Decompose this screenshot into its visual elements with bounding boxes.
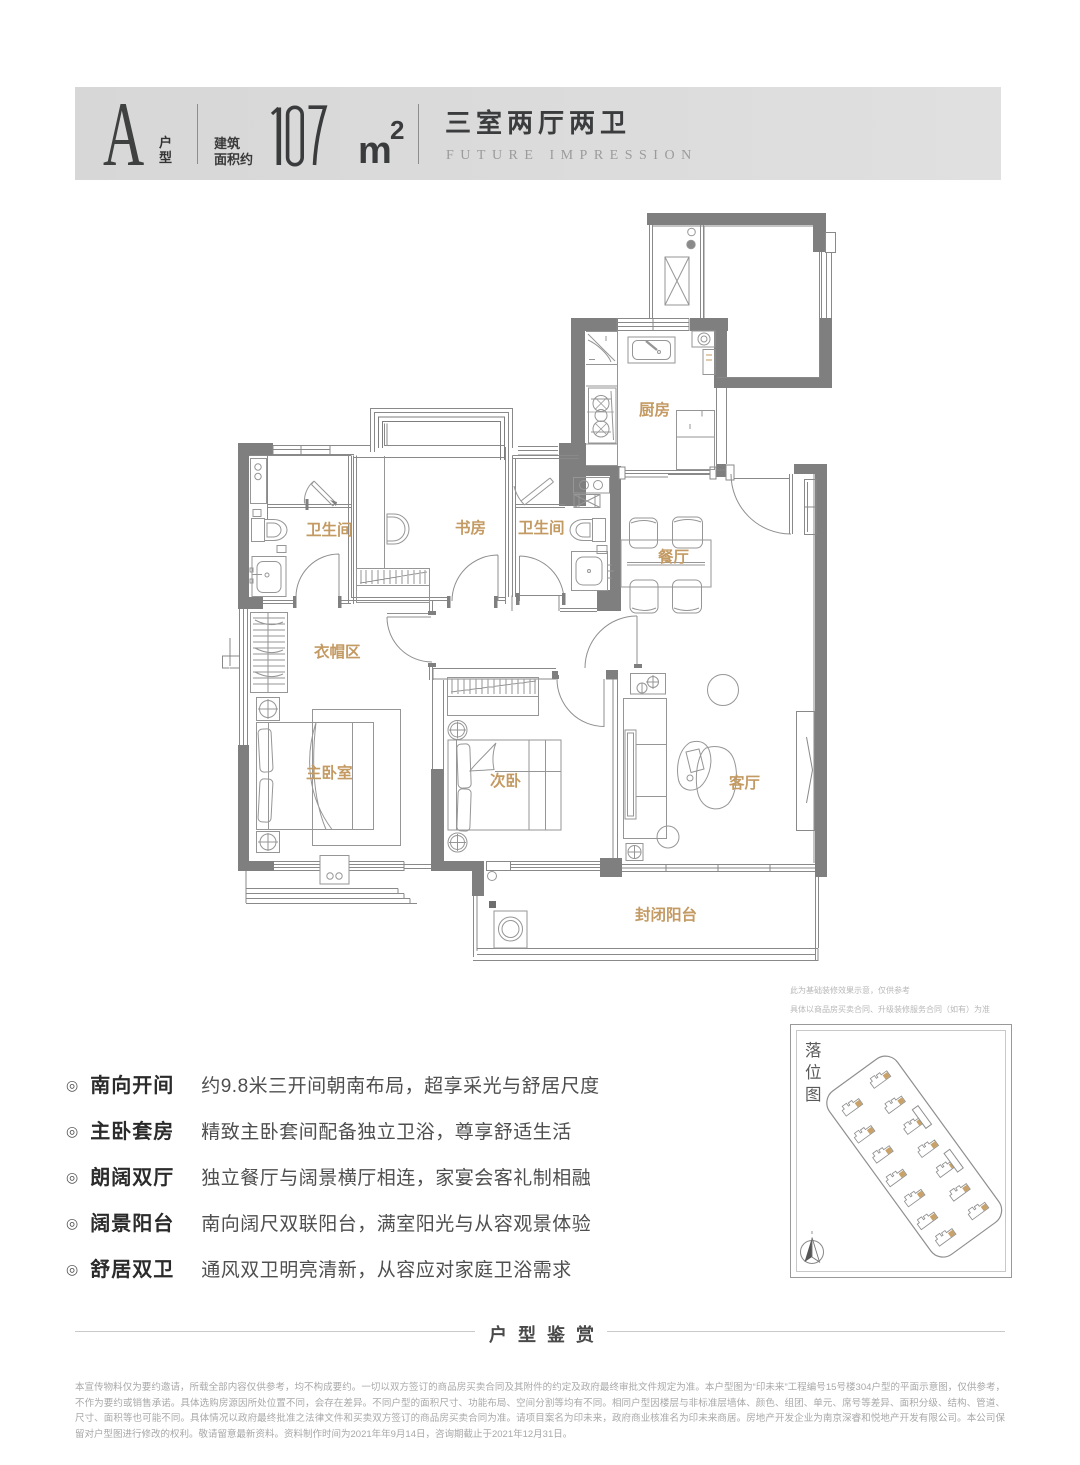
svg-text:卫生间: 卫生间 bbox=[518, 518, 565, 537]
svg-text:主卧室: 主卧室 bbox=[306, 763, 353, 782]
svg-text:次卧: 次卧 bbox=[490, 771, 522, 790]
svg-text:图: 图 bbox=[805, 1086, 822, 1104]
svg-text:落: 落 bbox=[805, 1041, 822, 1060]
svg-text:封闭阳台: 封闭阳台 bbox=[635, 905, 697, 924]
svg-text:厨房: 厨房 bbox=[639, 400, 670, 419]
svg-text:衣帽区: 衣帽区 bbox=[314, 642, 361, 661]
svg-text:位: 位 bbox=[805, 1063, 822, 1082]
svg-text:客厅: 客厅 bbox=[729, 773, 761, 792]
svg-text:餐厅: 餐厅 bbox=[657, 547, 690, 566]
svg-text:书房: 书房 bbox=[455, 518, 486, 537]
svg-text:卫生间: 卫生间 bbox=[306, 520, 353, 539]
